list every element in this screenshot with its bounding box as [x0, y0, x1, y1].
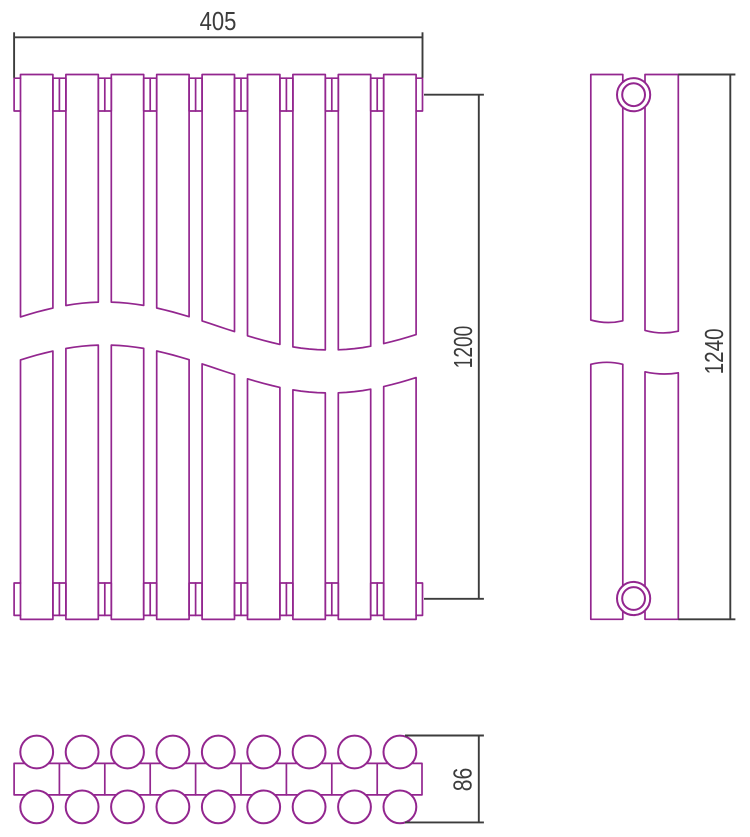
- svg-text:86: 86: [450, 768, 478, 792]
- svg-text:405: 405: [200, 8, 237, 36]
- svg-text:1200: 1200: [450, 326, 478, 369]
- svg-text:1240: 1240: [701, 328, 729, 374]
